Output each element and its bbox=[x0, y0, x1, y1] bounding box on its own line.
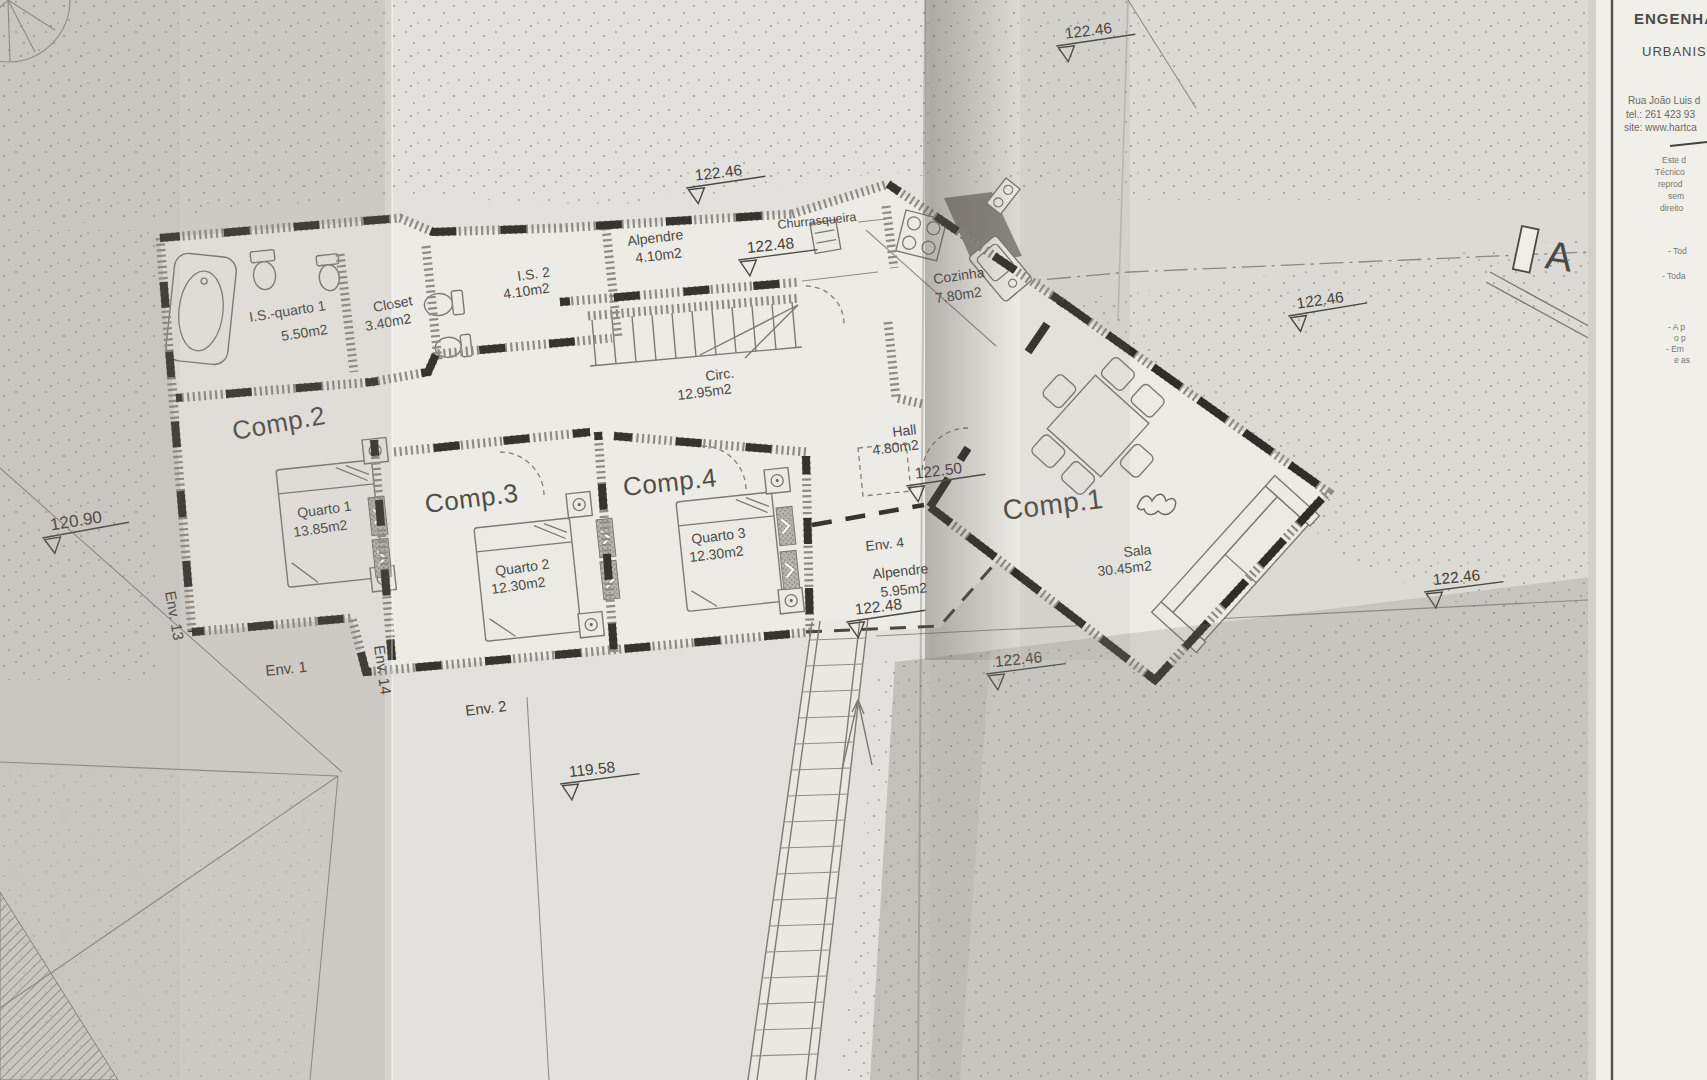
title-block-address: Rua João Luis d bbox=[1628, 95, 1700, 106]
title-block-disclaimer-2: Técnico bbox=[1655, 167, 1685, 177]
title-block-note-4: o p bbox=[1674, 333, 1686, 343]
title-block-note-2: - Toda bbox=[1662, 271, 1686, 281]
title-block-disclaimer-5: direito bbox=[1660, 203, 1683, 213]
title-block-note-5: - Em bbox=[1666, 344, 1684, 354]
title-block-note-3: - A p bbox=[1668, 322, 1685, 332]
title-block-disclaimer-3: reprod bbox=[1658, 179, 1683, 189]
title-block-company-1: ENGENHA bbox=[1634, 10, 1707, 27]
title-block-disclaimer-4: sem bbox=[1668, 191, 1684, 201]
title-block-company-2: URBANIS bbox=[1642, 44, 1707, 59]
title-block-phone: tel.: 261 423 93 bbox=[1626, 109, 1695, 120]
title-block-note-6: e as bbox=[1674, 355, 1690, 365]
title-block: ENGENHA URBANIS Rua João Luis d tel.: 26… bbox=[1588, 0, 1707, 1080]
floor-plan-photo: I.S.-quarto 1 5.50m2 Closet 3.40m2 I.S. … bbox=[0, 0, 1707, 1080]
floor-plan-svg: I.S.-quarto 1 5.50m2 Closet 3.40m2 I.S. … bbox=[0, 0, 1707, 1080]
title-block-website: site: www.hartca bbox=[1624, 122, 1697, 133]
title-block-disclaimer-1: Este d bbox=[1662, 155, 1686, 165]
title-block-note-1: - Tod bbox=[1668, 246, 1687, 256]
